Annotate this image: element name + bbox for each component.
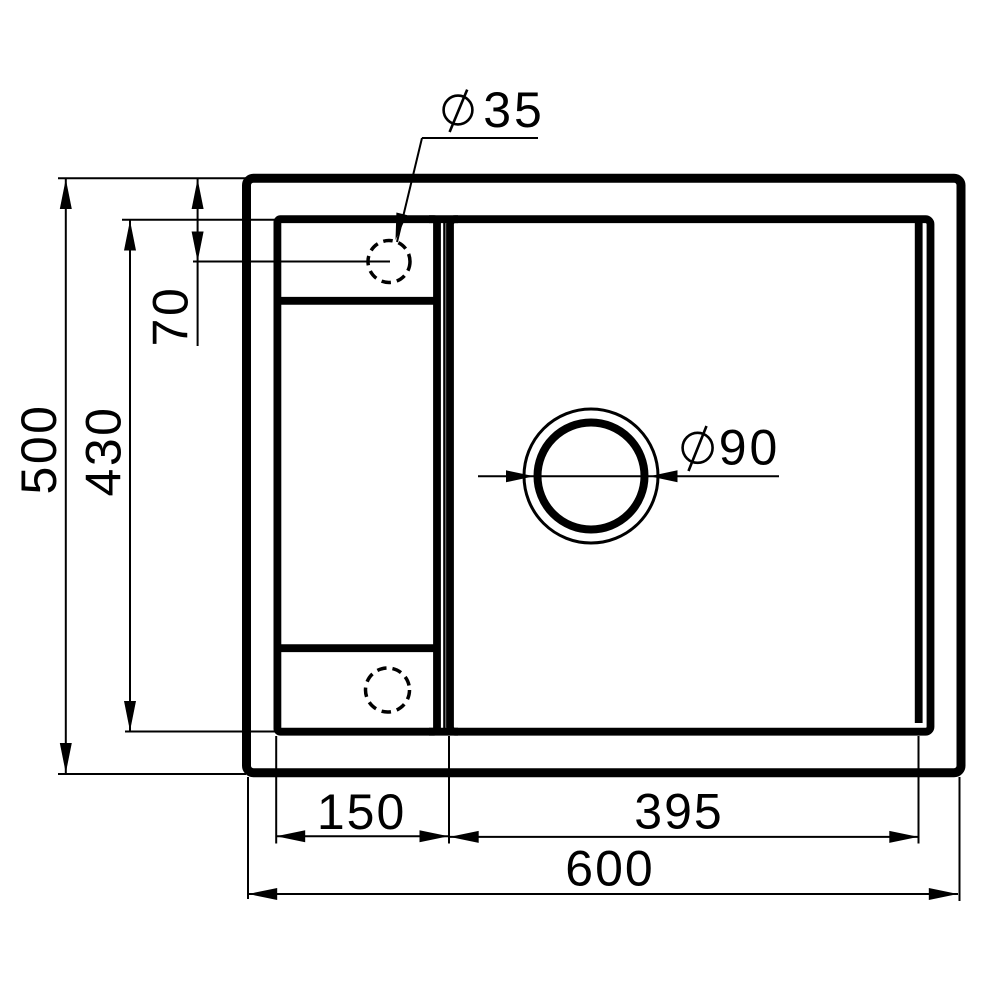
svg-text:600: 600 (565, 840, 654, 896)
svg-text:150: 150 (317, 784, 406, 840)
svg-text:395: 395 (634, 783, 723, 839)
svg-text:35: 35 (483, 82, 545, 138)
svg-text:90: 90 (719, 420, 781, 476)
svg-text:70: 70 (143, 286, 199, 347)
svg-text:430: 430 (76, 406, 132, 497)
svg-text:500: 500 (11, 404, 67, 495)
